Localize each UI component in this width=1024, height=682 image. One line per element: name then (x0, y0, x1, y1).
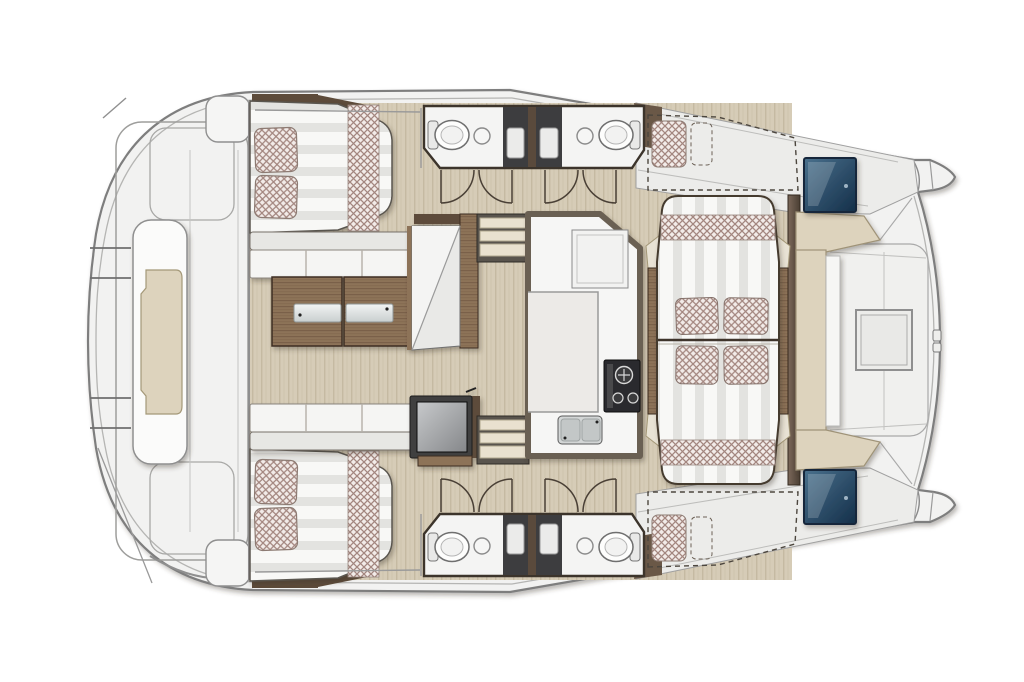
hatch-port (804, 158, 856, 212)
toilet (599, 121, 640, 150)
sink (474, 538, 490, 554)
galley (528, 214, 640, 456)
aft-lounge (133, 220, 187, 464)
sink (577, 128, 593, 144)
toilet (428, 121, 469, 150)
sink (474, 128, 490, 144)
sofa-stbd (250, 404, 418, 450)
hatch-stbd (804, 470, 856, 524)
tv-unit (410, 388, 480, 466)
sofa-port (250, 232, 418, 278)
dinette (646, 196, 790, 484)
sink (577, 538, 593, 554)
cabin-stbd-aft (250, 449, 392, 581)
pillow (652, 121, 686, 167)
catamaran-floor-plan (0, 0, 1024, 682)
galley-sole (528, 292, 598, 412)
cushion (724, 298, 769, 335)
bed-runner (348, 105, 379, 231)
cushion (724, 346, 769, 385)
refrigerator (572, 230, 628, 288)
bed-runner (348, 451, 379, 577)
foredeck-hatch (856, 310, 912, 370)
bow-cleat (933, 330, 941, 352)
toilet (428, 533, 469, 562)
cushion (675, 297, 718, 334)
cushion (676, 346, 719, 385)
toilet (599, 533, 640, 562)
pillow (254, 175, 297, 218)
bench-runner (661, 440, 775, 465)
pillow (254, 507, 297, 550)
pillow (254, 459, 298, 504)
pillow (652, 515, 686, 561)
stove (604, 360, 640, 412)
cabin-port-aft (250, 101, 392, 233)
nav-seat (407, 214, 478, 350)
steps-stbd (477, 416, 529, 464)
catamaran-floor-plan-page (0, 0, 1024, 682)
bench-runner (661, 215, 775, 240)
steps-port (477, 214, 529, 262)
double-sink (558, 416, 602, 444)
pillow (254, 127, 298, 172)
